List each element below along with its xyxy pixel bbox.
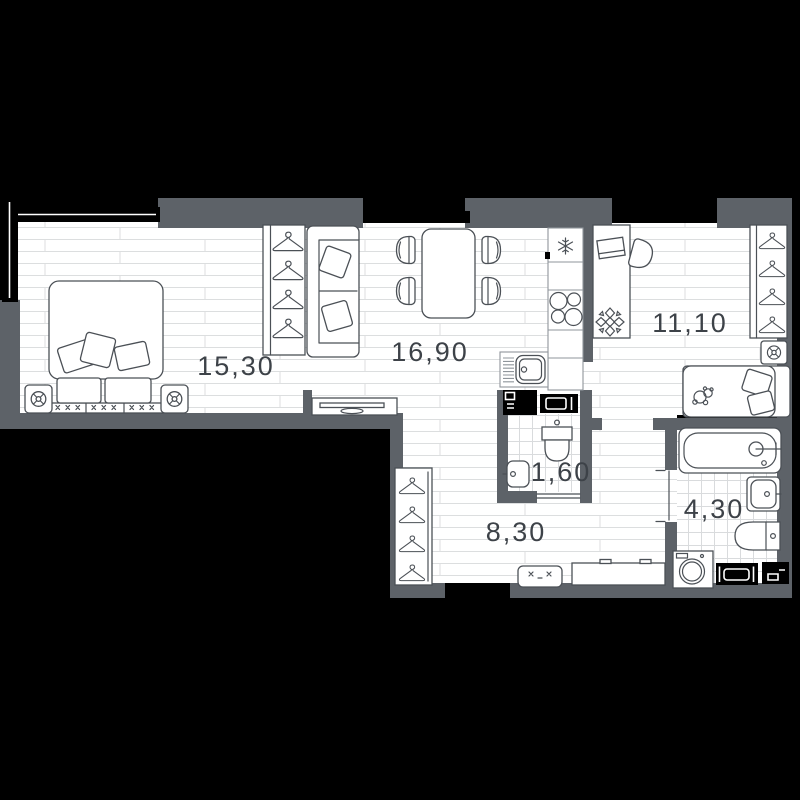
kitchen-sink-cabinet	[500, 352, 548, 387]
bed-pillow-right	[105, 378, 151, 403]
entrance-door-opening	[445, 583, 510, 598]
wall-kitchen-bedroom2	[583, 207, 593, 362]
room-label-wc: 1,60	[531, 457, 592, 487]
room-label-living-kitchen: 16,90	[391, 337, 469, 367]
tv	[320, 403, 384, 408]
dining-chair	[397, 237, 416, 264]
wall-wc-bottom	[497, 491, 537, 503]
room-label-hallway: 8,30	[486, 517, 547, 547]
bed-pillow-left	[57, 378, 101, 403]
room-label-bedroom: 15,30	[197, 351, 275, 381]
toilet-bathroom	[735, 522, 780, 550]
single-bed	[683, 366, 790, 417]
wall-bathroom-left-upper	[665, 430, 677, 470]
wall-stub-tv	[303, 390, 312, 415]
dining-table	[422, 229, 475, 318]
console-table	[572, 560, 665, 586]
dining-chair	[482, 278, 501, 305]
wardrobe-hallway	[395, 468, 432, 585]
washing-machine	[673, 551, 713, 588]
tv-console	[312, 398, 397, 415]
bed-cushion	[80, 332, 116, 368]
vent-shaft-kitchen-2	[540, 394, 578, 413]
bathtub	[679, 428, 781, 473]
table-lamp-icon	[31, 392, 46, 407]
console-handle	[640, 560, 651, 564]
fridge-door-hinge	[545, 252, 550, 259]
nightstand-left	[25, 385, 52, 413]
console-handle	[600, 560, 611, 564]
vent-shaft-kitchen-1	[503, 390, 537, 415]
wall-top-pier-1	[158, 198, 363, 228]
shoe-bench	[518, 566, 562, 587]
double-bed	[49, 281, 163, 413]
laptop	[597, 237, 625, 258]
table-lamp-icon	[767, 346, 780, 359]
vent-shaft-bathroom-2	[762, 562, 789, 584]
nightstand-bedroom2	[761, 341, 787, 364]
washbasin-bathroom	[747, 477, 781, 511]
vent-shaft-bathroom-1	[716, 563, 758, 585]
wardrobe-bedroom	[263, 225, 305, 355]
floor-plan: 15,30	[0, 0, 800, 800]
bed-headboard	[49, 403, 163, 413]
sofa	[307, 226, 359, 357]
dining-chair	[482, 237, 501, 264]
room-label-bedroom2: 11,10	[652, 308, 728, 338]
wardrobe-bedroom2	[750, 225, 787, 338]
wall-left	[0, 300, 20, 428]
washbasin-wc	[503, 461, 529, 487]
wall-doorframe-stub	[592, 418, 602, 430]
window-living	[363, 211, 470, 223]
room-label-bathroom: 4,30	[684, 494, 745, 524]
nightstand-right	[161, 385, 188, 413]
table-lamp-icon	[167, 392, 182, 407]
dining-chair	[397, 278, 416, 305]
floor-plan-canvas: 15,30	[0, 0, 800, 800]
window-bedroom2	[612, 211, 717, 223]
